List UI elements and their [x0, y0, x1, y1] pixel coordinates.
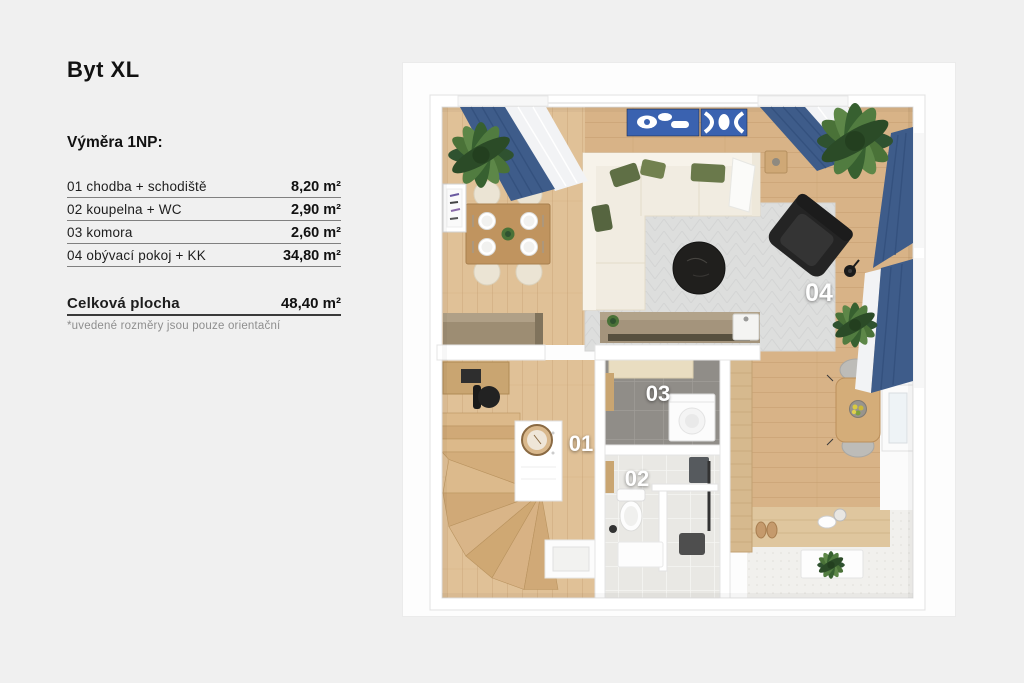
window [458, 96, 548, 106]
pantry-side-shelf [605, 373, 614, 411]
row-value: 34,80 m² [283, 248, 341, 264]
total-value: 48,40 m² [281, 295, 341, 312]
table-row: 03 komora 2,60 m² [67, 221, 341, 244]
row-value: 2,60 m² [291, 225, 341, 241]
table-row: 01 chodba + schodiště 8,20 m² [67, 175, 341, 198]
side-table [765, 151, 787, 173]
slipper [767, 522, 777, 538]
page-title: Byt XL [67, 57, 341, 83]
disclaimer-note: *uvedené rozměry jsou pouze orientační [67, 320, 341, 332]
table-row: 04 obývací pokoj + KK 34,80 m² [67, 244, 341, 267]
laptop [461, 369, 481, 383]
office-chair [478, 386, 500, 408]
window [914, 258, 924, 388]
total-row: Celková plocha 48,40 m² [67, 291, 341, 316]
bath-mat [618, 542, 663, 567]
slipper [756, 522, 766, 538]
decor-object [834, 509, 846, 521]
legend-panel: Byt XL Výměra 1NP: 01 chodba + schodiště… [67, 57, 341, 332]
row-value: 8,20 m² [291, 179, 341, 195]
row-label: 02 koupelna + WC [67, 202, 182, 217]
area-table: 01 chodba + schodiště 8,20 m² 02 koupeln… [67, 175, 341, 267]
interior-wall [595, 345, 760, 360]
floorplan-card: 01 02 03 04 [403, 63, 955, 616]
washing-machine [669, 394, 715, 441]
row-value: 2,90 m² [291, 202, 341, 218]
table-row: 02 koupelna + WC 2,90 m² [67, 198, 341, 221]
section-label: Výměra 1NP: [67, 134, 341, 152]
interior-wall [595, 360, 605, 598]
stair-cabinet [515, 421, 562, 501]
row-label: 01 chodba + schodiště [67, 179, 207, 194]
kitchen-area [443, 312, 760, 345]
bath-shelf [605, 461, 614, 493]
interior-wall [605, 445, 720, 455]
wall-art [627, 109, 747, 136]
row-label: 04 obývací pokoj + KK [67, 248, 206, 263]
wood-partition [727, 360, 752, 552]
row-label: 03 komora [67, 225, 133, 240]
window [914, 133, 924, 248]
sofa-pillow [691, 163, 726, 183]
room-label-01: 01 [569, 431, 593, 456]
faucet [744, 317, 749, 322]
interior-wall [720, 360, 730, 598]
shower-glass [652, 484, 718, 491]
coffee-table [673, 242, 725, 294]
toilet-brush [609, 525, 617, 533]
room-label-03: 03 [646, 381, 670, 406]
pantry-shelf [609, 360, 693, 378]
interior-wall [437, 345, 545, 360]
room-label-04: 04 [805, 279, 833, 307]
entry-door-threshold [545, 540, 597, 578]
window [758, 96, 848, 106]
room-label-02: 02 [625, 466, 649, 491]
decor-object [818, 516, 836, 528]
floorplan-svg: 01 02 03 04 [403, 63, 955, 616]
shower-mat [679, 533, 705, 555]
total-label: Celková plocha [67, 295, 180, 312]
